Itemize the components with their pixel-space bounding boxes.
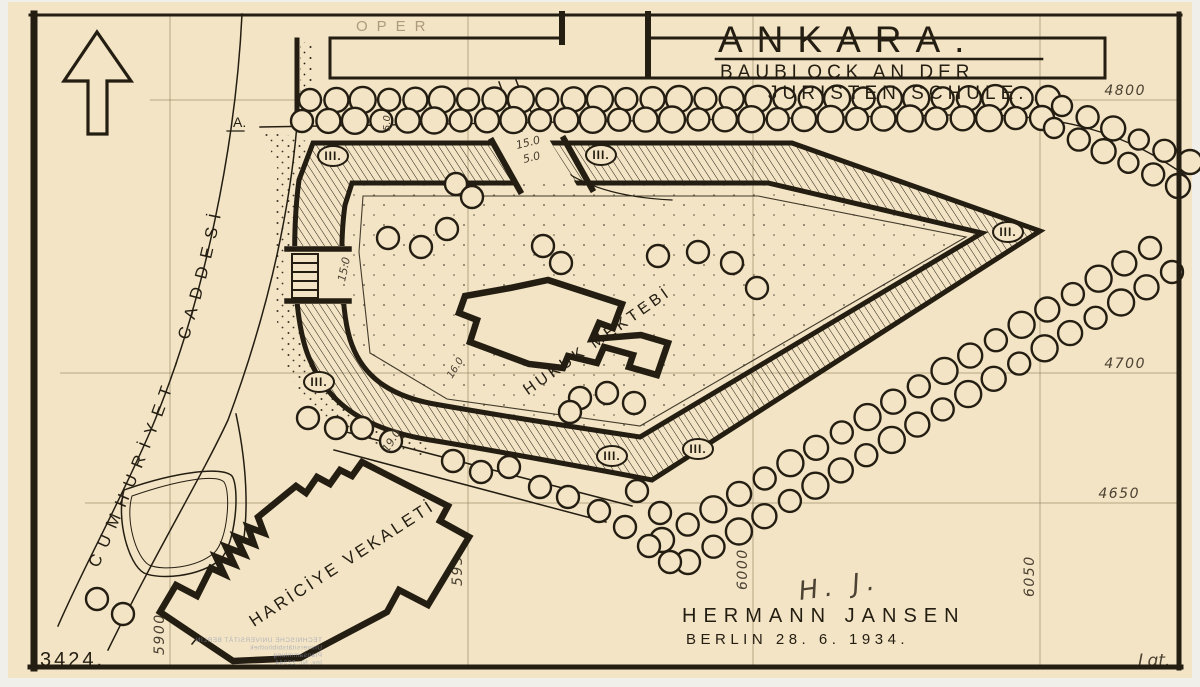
tree (457, 89, 479, 111)
page-title: ANKARA. (718, 19, 978, 60)
tree (1032, 335, 1058, 361)
tree (325, 417, 347, 439)
tree (475, 108, 499, 132)
tree (818, 106, 844, 132)
tree (1101, 116, 1125, 140)
tree (779, 490, 801, 512)
tree (498, 456, 520, 478)
tree (1142, 163, 1164, 185)
tree (955, 381, 981, 407)
tree (626, 480, 648, 502)
tree (421, 108, 447, 134)
tree (726, 519, 752, 545)
floor-marker-label: III. (603, 449, 620, 463)
tree (1009, 312, 1035, 338)
tree (687, 241, 709, 263)
stamp-line: TECHNISCHE UNIVERSITÄT BERLIN (195, 636, 322, 644)
tree (1077, 106, 1099, 128)
place-date: BERLIN 28. 6. 1934. (686, 631, 909, 648)
tree (879, 427, 905, 453)
tree (436, 218, 458, 240)
tree (550, 252, 572, 274)
tree (804, 436, 828, 460)
floor-marker-label: III. (592, 148, 609, 162)
grid-label: 6050 (1022, 555, 1038, 597)
title-sub1: BAUBLOCK AN DER (720, 62, 975, 83)
tree (1112, 251, 1136, 275)
tree (1035, 298, 1059, 322)
tree (1118, 153, 1138, 173)
tree (871, 107, 895, 131)
tree (1153, 140, 1175, 162)
tree (703, 536, 725, 558)
tree (638, 535, 660, 557)
tree (378, 89, 400, 111)
stamp-line: Universitätsbibliothek (249, 645, 322, 652)
tree (829, 458, 853, 482)
tree (932, 358, 958, 384)
tree (932, 398, 954, 420)
tree (908, 375, 930, 397)
tree (1058, 321, 1082, 345)
tree (855, 444, 877, 466)
tree (529, 476, 551, 498)
site-plan-canvas: 4800470046505900595060006050 III.III.III… (0, 0, 1200, 687)
tree (659, 551, 681, 573)
tree (1005, 107, 1027, 129)
tree (1092, 139, 1116, 163)
tree (351, 417, 373, 439)
tree (608, 109, 630, 131)
tree (721, 252, 743, 274)
tree (623, 392, 645, 414)
tree (596, 382, 618, 404)
tree (450, 109, 472, 131)
tree (342, 108, 368, 134)
street-a-label: A. (233, 114, 246, 130)
tree (713, 107, 737, 131)
tree (754, 468, 776, 490)
tree (396, 109, 420, 133)
grid-label: 4700 (1104, 356, 1146, 372)
tree (985, 329, 1007, 351)
tree (925, 107, 947, 129)
grid-label: 4650 (1098, 486, 1140, 502)
tree (659, 107, 685, 133)
dimension-label: 5.0 (382, 115, 393, 131)
oper-label: OPER (356, 18, 435, 35)
floor-marker-label: III. (310, 375, 327, 389)
floor-marker-label: III. (689, 442, 706, 456)
tree (1068, 129, 1090, 151)
tree (897, 106, 923, 132)
tree (557, 486, 579, 508)
tree (727, 482, 751, 506)
tree (529, 109, 551, 131)
tree (738, 106, 764, 132)
scanned-plan-sheet: 4800470046505900595060006050 III.III.III… (0, 0, 1200, 687)
tree (615, 88, 637, 110)
tree (588, 500, 610, 522)
floor-marker-label: III. (324, 149, 341, 163)
grid-label: 4800 (1104, 83, 1146, 99)
tree (470, 461, 492, 483)
tree (461, 186, 483, 208)
tree (677, 514, 699, 536)
tree (746, 277, 768, 299)
tree (634, 108, 658, 132)
tree (694, 88, 716, 110)
grid-label: 6000 (735, 548, 751, 590)
tree (291, 110, 313, 132)
tree (536, 88, 558, 110)
tree (767, 108, 789, 130)
tree (442, 450, 464, 472)
tree (1085, 307, 1107, 329)
tree (1062, 283, 1084, 305)
tree (1108, 290, 1134, 316)
title-sub2: JURISTEN SCHULE. (768, 83, 1029, 104)
tree (1086, 266, 1112, 292)
tree (647, 245, 669, 267)
tree (1129, 130, 1149, 150)
tree (1008, 353, 1030, 375)
tree (905, 413, 929, 437)
tree (700, 496, 726, 522)
tree (831, 421, 853, 443)
tree (976, 105, 1002, 131)
tree (982, 367, 1006, 391)
tree (500, 107, 526, 133)
tree (580, 107, 606, 133)
floor-marker-label: III. (999, 225, 1016, 239)
tree (958, 344, 982, 368)
tree (86, 588, 108, 610)
tree (554, 108, 578, 132)
tree (802, 473, 828, 499)
tree (951, 106, 975, 130)
tree (1139, 237, 1161, 259)
tree (855, 404, 881, 430)
tree (377, 227, 399, 249)
tree (687, 108, 709, 130)
tree (792, 107, 816, 131)
tree (881, 390, 905, 414)
tree (846, 108, 868, 130)
tree (410, 236, 432, 258)
tree (297, 407, 319, 429)
tree (1044, 118, 1064, 138)
tree (1135, 275, 1159, 299)
tree (299, 89, 321, 111)
stamp-line: Plansammlung (273, 652, 322, 659)
tree (752, 504, 776, 528)
tree (112, 603, 134, 625)
architect-name: HERMANN JANSEN (682, 605, 966, 627)
tree (649, 502, 671, 524)
tree (1052, 96, 1072, 116)
tree (532, 235, 554, 257)
tree (614, 516, 636, 538)
tree (316, 109, 340, 133)
tree (559, 401, 581, 423)
tree (777, 450, 803, 476)
